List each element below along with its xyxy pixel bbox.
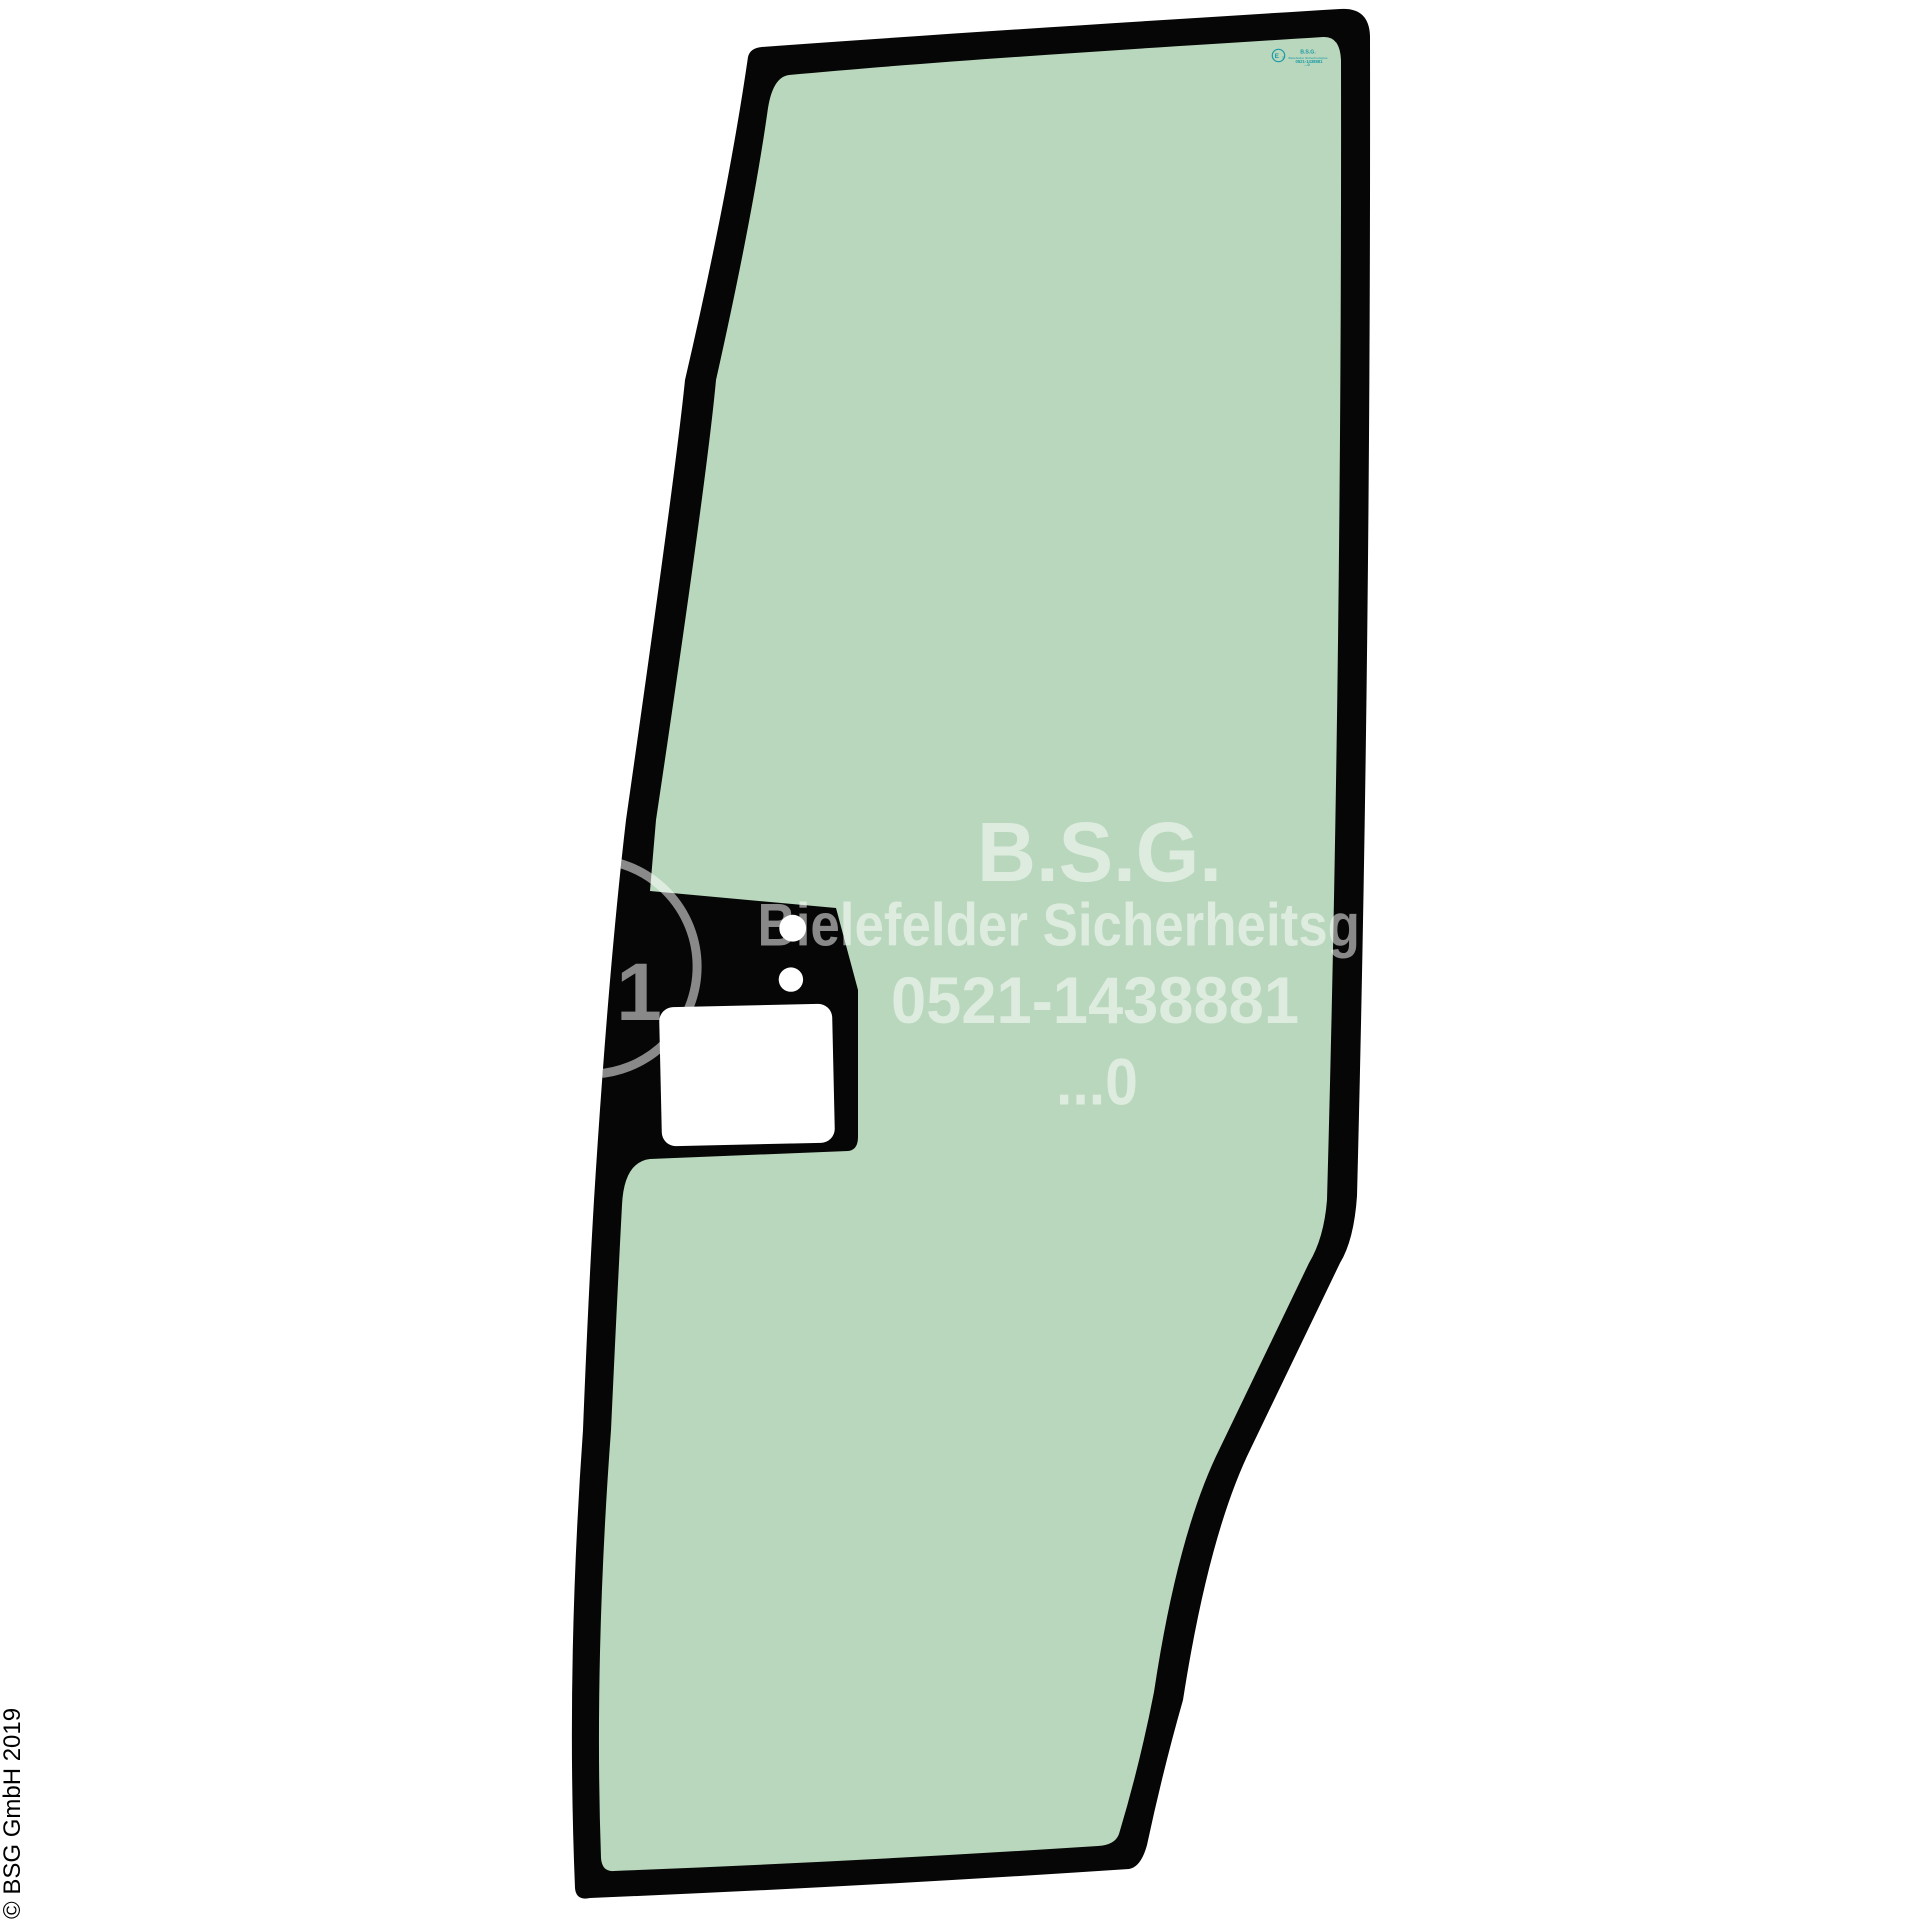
svg-text:E: E [1275, 53, 1280, 60]
svg-text:...0: ...0 [1304, 62, 1310, 67]
svg-text:© BSG GmbH 2019: © BSG GmbH 2019 [0, 1708, 26, 1919]
svg-text:B.S.G.: B.S.G. [977, 804, 1222, 899]
svg-text:1: 1 [616, 947, 662, 1038]
svg-text:0521-1438881: 0521-1438881 [891, 964, 1299, 1038]
svg-text:B.S.G.: B.S.G. [1300, 50, 1316, 56]
svg-text:Bielefelder Sicherheitsglas: Bielefelder Sicherheitsglas [758, 891, 1434, 959]
svg-text:...0: ...0 [1056, 1046, 1138, 1120]
